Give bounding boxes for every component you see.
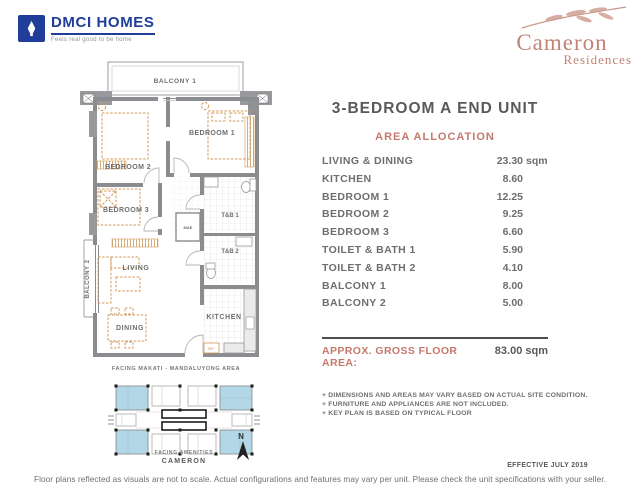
room-label-balcony2: BALCONY 2 (85, 259, 91, 298)
north-label: N (238, 432, 244, 441)
unit-title: 3-BEDROOM A END UNIT (322, 100, 548, 118)
dmci-logo-text: DMCI HOMES Feels real good to be home (51, 15, 155, 43)
table-row: LIVING & DINING23.30 sqm (322, 155, 548, 173)
area-value: 23.30 (468, 155, 523, 167)
table-row: BEDROOM 112.25 (322, 191, 548, 209)
cameron-name: Cameron (488, 31, 636, 54)
area-value: 12.25 (468, 191, 523, 203)
effective-date: EFFECTIVE JULY 2019 (322, 462, 588, 469)
room-label-bedroom2: BEDROOM 2 (105, 164, 151, 171)
area-value: 5.90 (468, 244, 523, 256)
area-value: 9.25 (468, 208, 523, 220)
cameron-logo: Cameron Residences (488, 4, 636, 68)
area-label: BEDROOM 2 (322, 208, 468, 220)
facing-caption: FACING MAKATI - MANDALUYONG AREA (70, 366, 282, 372)
note: + KEY PLAN IS BASED ON TYPICAL FLOOR (322, 409, 588, 418)
note: + FURNITURE AND APPLIANCES ARE NOT INCLU… (322, 400, 588, 409)
room-label-bedroom1: BEDROOM 1 (189, 130, 235, 137)
room-label-balcony1: BALCONY 1 (154, 78, 197, 85)
dmci-house-icon (18, 15, 45, 42)
room-label-kitchen: KITCHEN (206, 314, 241, 321)
north-arrow: N (230, 428, 256, 464)
area-allocation-table: LIVING & DINING23.30 sqm KITCHEN8.60 BED… (322, 155, 548, 315)
gross-floor-area-row: APPROX. GROSS FLOOR AREA: 83.00 sqm (322, 345, 548, 369)
note: + DIMENSIONS AND AREAS MAY VARY BASED ON… (322, 391, 588, 400)
unit-info-panel: 3-BEDROOM A END UNIT AREA ALLOCATION LIV… (322, 100, 548, 315)
divider-line (322, 337, 548, 339)
room-label-tb2: T&B 2 (221, 249, 239, 255)
area-allocation-heading: AREA ALLOCATION (322, 131, 548, 143)
area-value: 4.10 (468, 262, 523, 274)
room-label-bedroom3: BEDROOM 3 (103, 207, 149, 214)
table-row: BALCONY 18.00 (322, 280, 548, 298)
me-label: M&E (184, 225, 193, 230)
area-label: TOILET & BATH 2 (322, 262, 468, 274)
table-row: KITCHEN8.60 (322, 173, 548, 191)
table-row: TOILET & BATH 24.10 (322, 262, 548, 280)
keyplan-core (162, 410, 206, 430)
area-value: 6.60 (468, 226, 523, 238)
area-label: TOILET & BATH 1 (322, 244, 468, 256)
area-label: BALCONY 1 (322, 280, 468, 292)
notes-list: + DIMENSIONS AND AREAS MAY VARY BASED ON… (322, 391, 588, 418)
area-value: 5.00 (468, 297, 523, 309)
table-row: BALCONY 25.00 (322, 297, 548, 315)
leaf-branch-icon (514, 4, 634, 30)
area-value: 8.00 (468, 280, 523, 292)
dmci-name: DMCI HOMES (51, 15, 155, 35)
ref-label: REF (208, 347, 215, 351)
gross-floor-area-value: 83.00 sqm (495, 345, 548, 357)
area-label: BALCONY 2 (322, 297, 468, 309)
area-value: 8.60 (468, 173, 523, 185)
room-label-living: LIVING (123, 265, 150, 272)
dmci-tagline: Feels real good to be home (51, 37, 155, 43)
table-row: BEDROOM 36.60 (322, 226, 548, 244)
footer-disclaimer: Floor plans reflected as visuals are not… (0, 475, 640, 484)
area-unit: sqm (523, 155, 548, 167)
area-label: BEDROOM 1 (322, 191, 468, 203)
dmci-logo: DMCI HOMES Feels real good to be home (18, 15, 155, 43)
area-label: LIVING & DINING (322, 155, 468, 167)
area-label: BEDROOM 3 (322, 226, 468, 238)
area-label: KITCHEN (322, 173, 468, 185)
room-label-dining: DINING (116, 325, 144, 332)
table-row: BEDROOM 29.25 (322, 208, 548, 226)
gross-floor-area-label: APPROX. GROSS FLOOR AREA: (322, 345, 495, 369)
room-label-tb1: T&B 1 (221, 213, 239, 219)
table-row: TOILET & BATH 15.90 (322, 244, 548, 262)
north-arrow-glyph (237, 441, 249, 460)
floor-plan: ACCU ACCU (78, 55, 274, 373)
